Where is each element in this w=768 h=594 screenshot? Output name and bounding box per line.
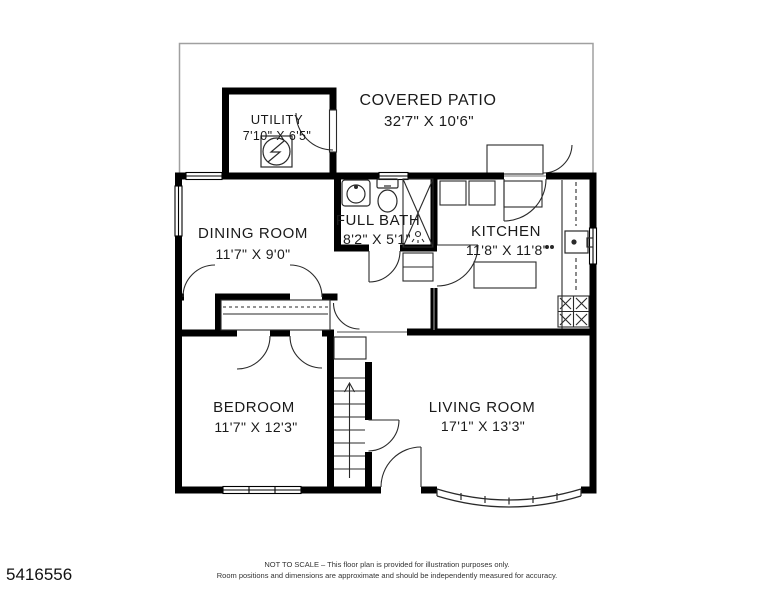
room-label-living-room: LIVING ROOM 17'1" X 13'3" <box>429 399 536 434</box>
bedroom-dims: 11'7" X 12'3" <box>214 419 297 435</box>
disclaimer: NOT TO SCALE – This floor plan is provid… <box>180 559 594 581</box>
covered-patio-name: COVERED PATIO <box>359 92 496 109</box>
room-label-full-bath: FULL BATH 8'2" X 5'1" <box>336 212 421 247</box>
kitchen-dims: 11'8" X 11'8" <box>466 242 548 258</box>
utility-name: UTILITY <box>251 112 304 127</box>
floor-plan: COVERED PATIO 32'7" X 10'6" UTILITY 7'10… <box>0 0 768 594</box>
living-room-name: LIVING ROOM <box>429 399 536 416</box>
stairs-up-icon <box>334 337 366 478</box>
kitchen-island <box>474 262 536 288</box>
stove-icon <box>558 296 589 327</box>
bedroom-name: BEDROOM <box>213 399 295 416</box>
covered-patio-dims: 32'7" X 10'6" <box>384 113 474 130</box>
room-label-dining-room: DINING ROOM 11'7" X 9'0" <box>198 225 308 262</box>
room-labels: COVERED PATIO 32'7" X 10'6" UTILITY 7'10… <box>198 92 548 435</box>
disclaimer-line-1: NOT TO SCALE – This floor plan is provid… <box>180 559 594 570</box>
bay-window <box>437 489 581 507</box>
kitchen-name: KITCHEN <box>471 223 541 240</box>
linen-closet <box>403 253 433 281</box>
dining-room-name: DINING ROOM <box>198 225 308 242</box>
utility-dims: 7'10" X 6'5" <box>243 129 312 143</box>
room-label-utility: UTILITY 7'10" X 6'5" <box>243 112 312 143</box>
kitchen-sink-icon <box>546 231 593 253</box>
toilet-icon <box>377 179 398 212</box>
full-bath-name: FULL BATH <box>336 212 421 229</box>
dining-room-dims: 11'7" X 9'0" <box>215 246 290 262</box>
patio-counter <box>487 145 572 174</box>
room-label-kitchen: KITCHEN 11'8" X 11'8" <box>466 223 548 258</box>
room-label-covered-patio: COVERED PATIO 32'7" X 10'6" <box>359 92 496 130</box>
full-bath-dims: 8'2" X 5'1" <box>343 231 411 247</box>
mls-number: 5416556 <box>6 565 72 585</box>
closet <box>221 300 330 330</box>
cased-opening <box>337 288 434 332</box>
room-label-bedroom: BEDROOM 11'7" X 12'3" <box>213 399 298 435</box>
bath-sink-icon <box>342 180 370 206</box>
disclaimer-line-2: Room positions and dimensions are approx… <box>180 570 594 581</box>
floor-plan-page: COVERED PATIO 32'7" X 10'6" UTILITY 7'10… <box>0 0 768 594</box>
patio-outline <box>180 44 594 177</box>
living-room-dims: 17'1" X 13'3" <box>441 418 525 434</box>
